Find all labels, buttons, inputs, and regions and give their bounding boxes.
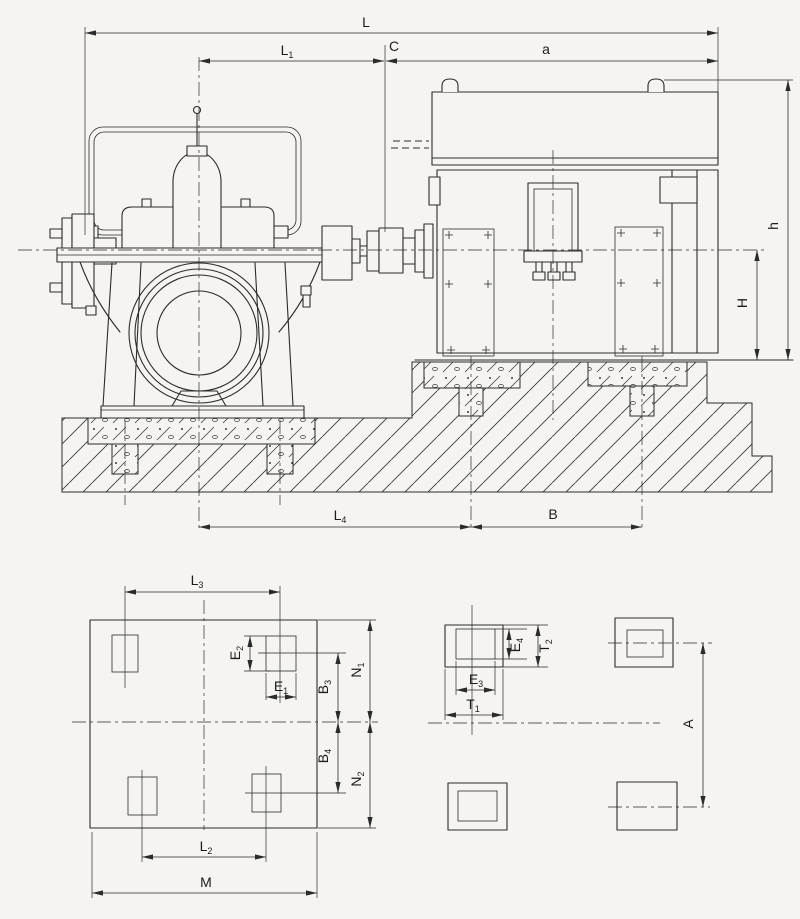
motor-shaft-end xyxy=(424,224,433,278)
motor-cooler-box xyxy=(432,92,718,158)
pump-baseplate xyxy=(101,406,304,418)
dim-label-C: C xyxy=(389,38,399,54)
dim-label-B: B xyxy=(548,506,557,522)
casing-hump-right xyxy=(220,207,274,248)
dim-label-h: h xyxy=(765,222,781,230)
pump-motor-installation-drawing: L L1 C a h H L4 xyxy=(0,0,800,919)
dim-label-L: L xyxy=(362,14,370,30)
dim-label-M: M xyxy=(200,874,212,890)
flange-bolt xyxy=(50,283,62,292)
dim-label-A: A xyxy=(680,719,696,729)
lifting-lug-right xyxy=(648,79,664,92)
drain-bolt xyxy=(86,306,96,315)
dim-label-H: H xyxy=(734,298,750,308)
lifting-lug-left xyxy=(442,79,458,92)
vent-plug xyxy=(241,199,250,207)
vent-plug xyxy=(142,199,151,207)
coupling-half-pump xyxy=(367,231,379,271)
flange-bolt xyxy=(50,229,62,238)
coupling-half-motor xyxy=(379,228,403,273)
drain-bolt xyxy=(301,286,311,295)
dim-label-a: a xyxy=(542,41,550,57)
pump-bearing-housing xyxy=(322,226,352,280)
drawing-sheet: L L1 C a h H L4 xyxy=(0,0,800,919)
casing-hump-left xyxy=(122,207,174,248)
